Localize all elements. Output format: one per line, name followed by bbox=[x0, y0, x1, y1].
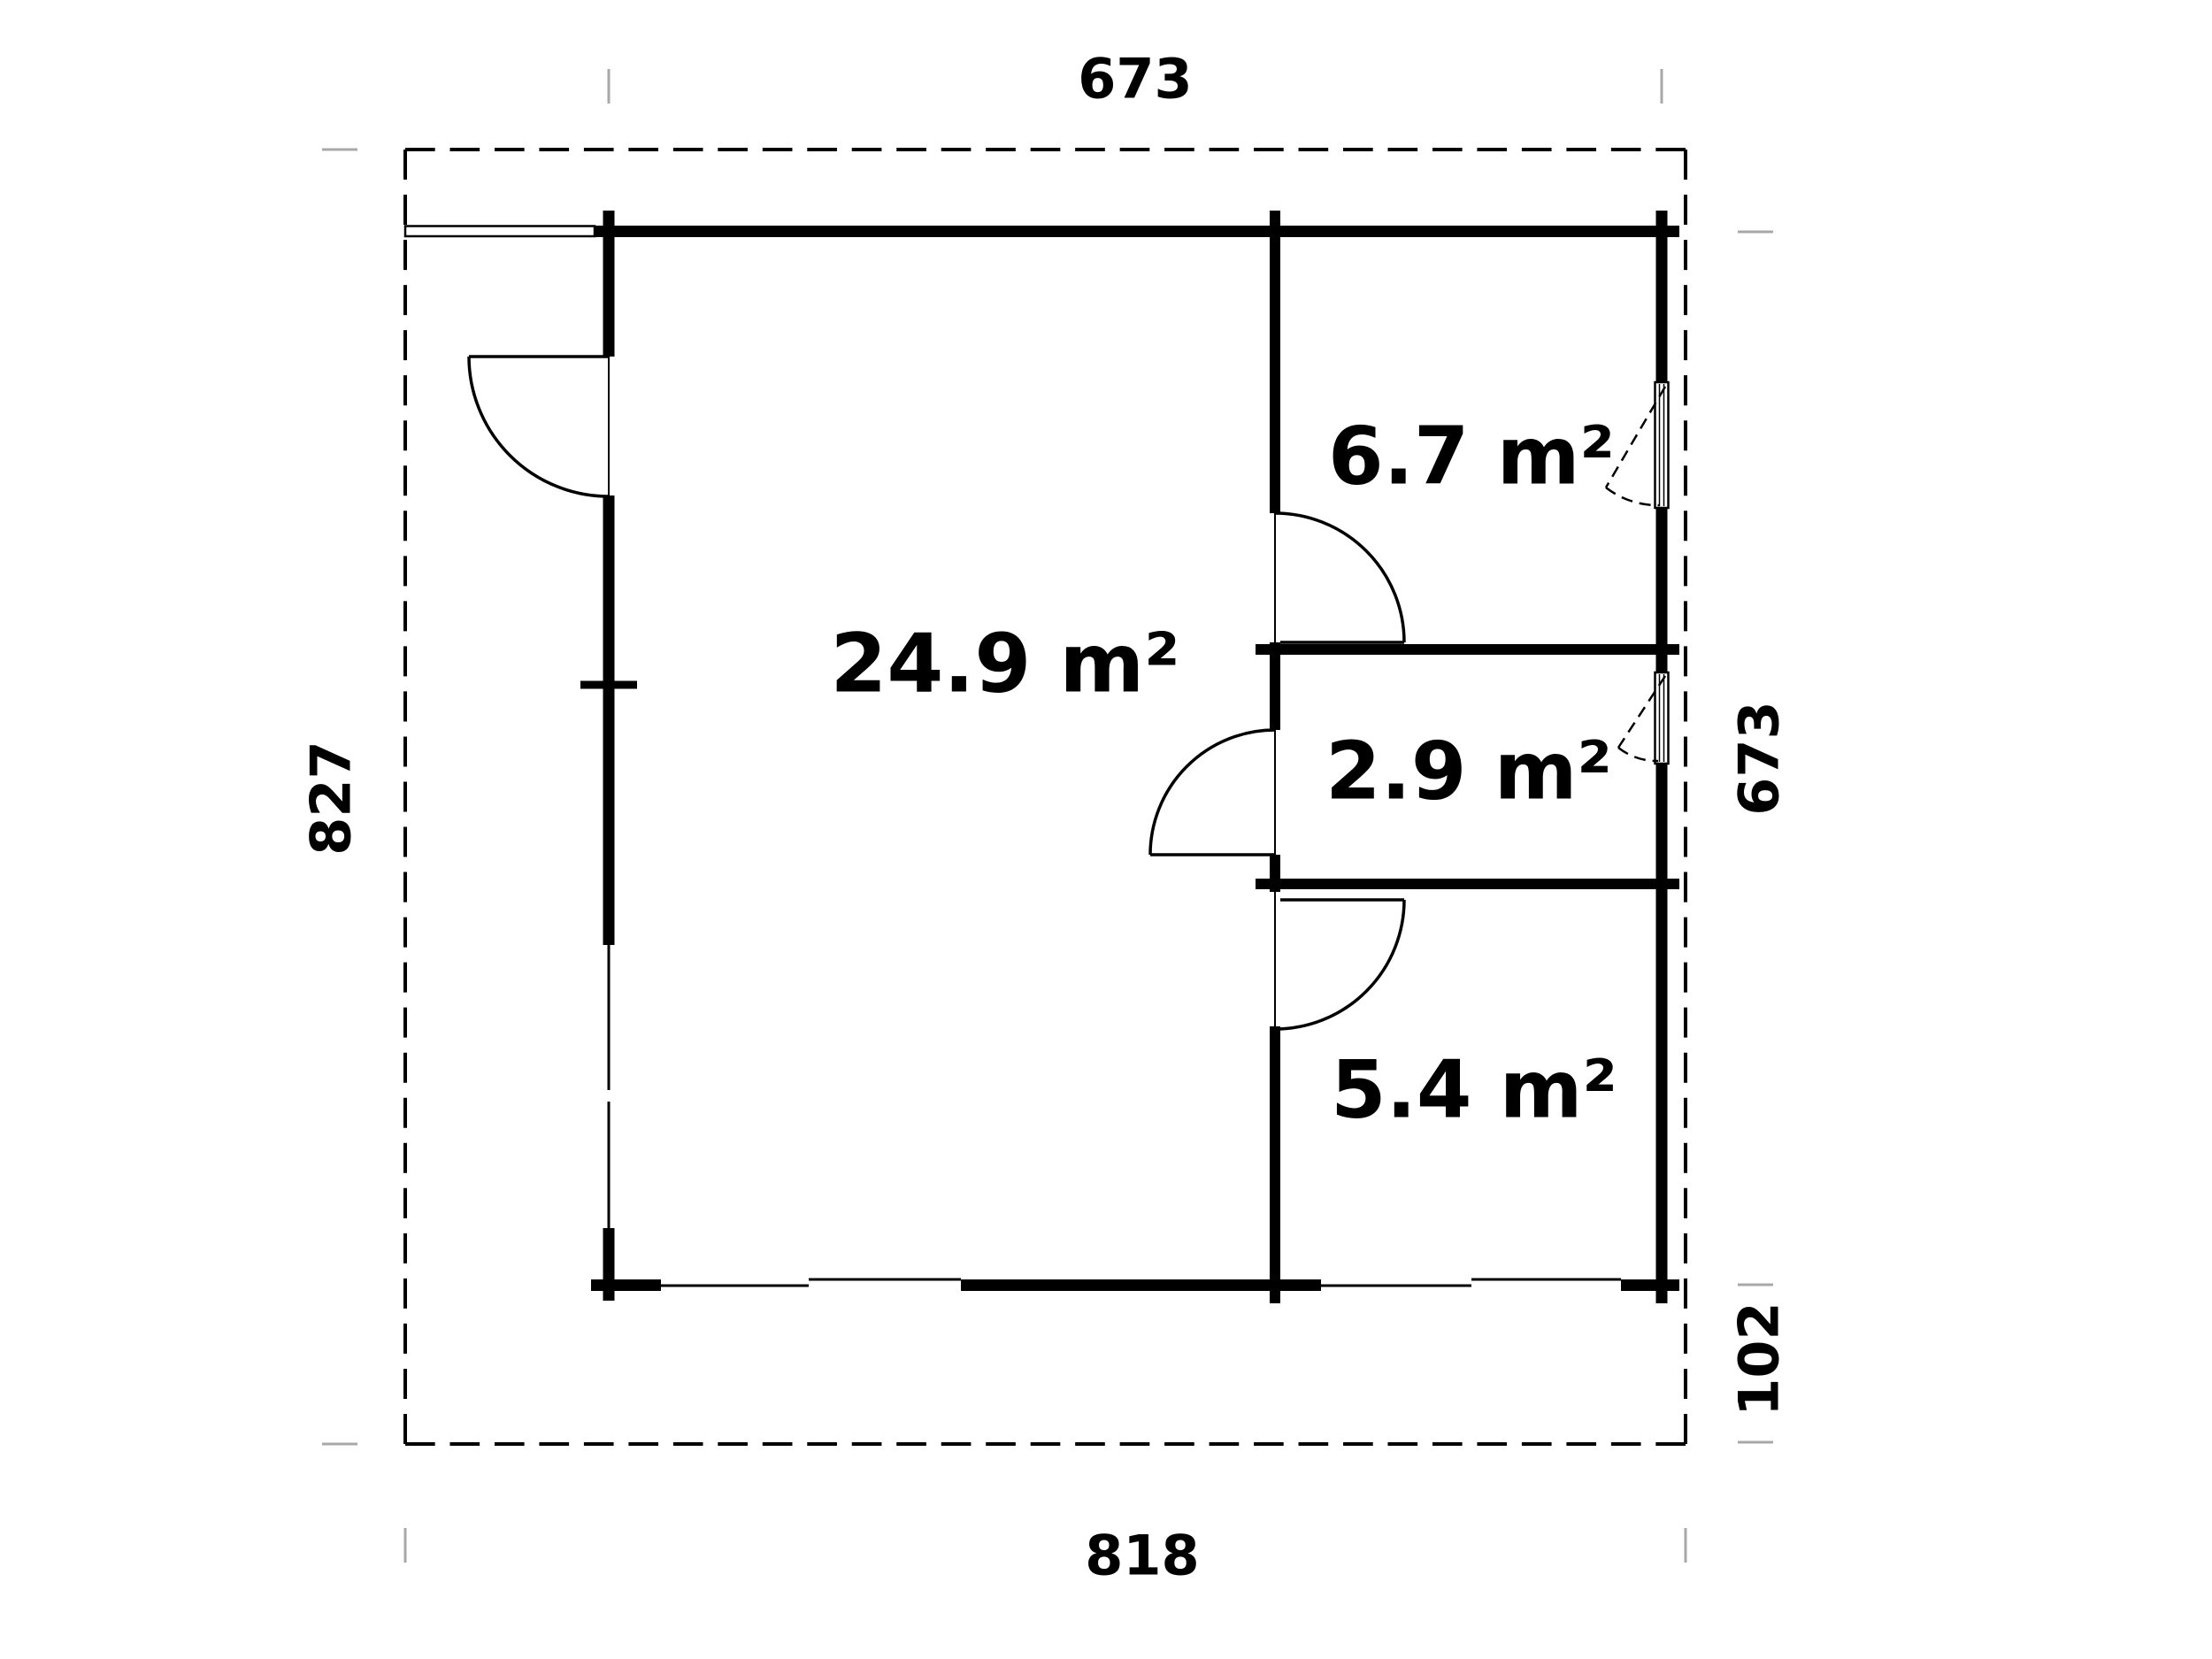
window-2_9-room-opening-dash bbox=[1618, 748, 1658, 761]
dim-width-top: 673 bbox=[1078, 47, 1192, 111]
carport-side-beam bbox=[405, 227, 595, 237]
room-label-2_9: 2.9 m² bbox=[1325, 726, 1612, 818]
carport-beam-layer bbox=[405, 227, 595, 237]
dim-height-right: 673 bbox=[1727, 701, 1792, 815]
room-label-5_4: 5.4 m² bbox=[1331, 1044, 1617, 1137]
labels-layer: 67381882767310224.9 m²6.7 m²2.9 m²5.4 m² bbox=[299, 47, 1792, 1588]
door-main-to-6_7-room-swing-arc bbox=[1275, 513, 1404, 642]
floor-plan-drawing: 67381882767310224.9 m²6.7 m²2.9 m²5.4 m² bbox=[0, 0, 2212, 1659]
dim-height-left: 827 bbox=[299, 741, 364, 855]
dim-width-bottom: 818 bbox=[1085, 1524, 1199, 1588]
room-label-6_7: 6.7 m² bbox=[1328, 411, 1615, 503]
window-6_7-room-frame bbox=[1655, 382, 1669, 508]
room-label-main: 24.9 m² bbox=[830, 617, 1179, 711]
door-main-to-2_9-room-swing-arc bbox=[1150, 730, 1275, 855]
door-main-to-5_4-room-swing-arc bbox=[1275, 900, 1404, 1029]
entrance-door-left-wall-swing-arc bbox=[469, 357, 609, 496]
floor-plan-page: 67381882767310224.9 m²6.7 m²2.9 m²5.4 m² bbox=[0, 0, 2212, 1659]
dim-terrace-right: 102 bbox=[1727, 1302, 1792, 1416]
window-2_9-room-frame bbox=[1655, 672, 1669, 764]
